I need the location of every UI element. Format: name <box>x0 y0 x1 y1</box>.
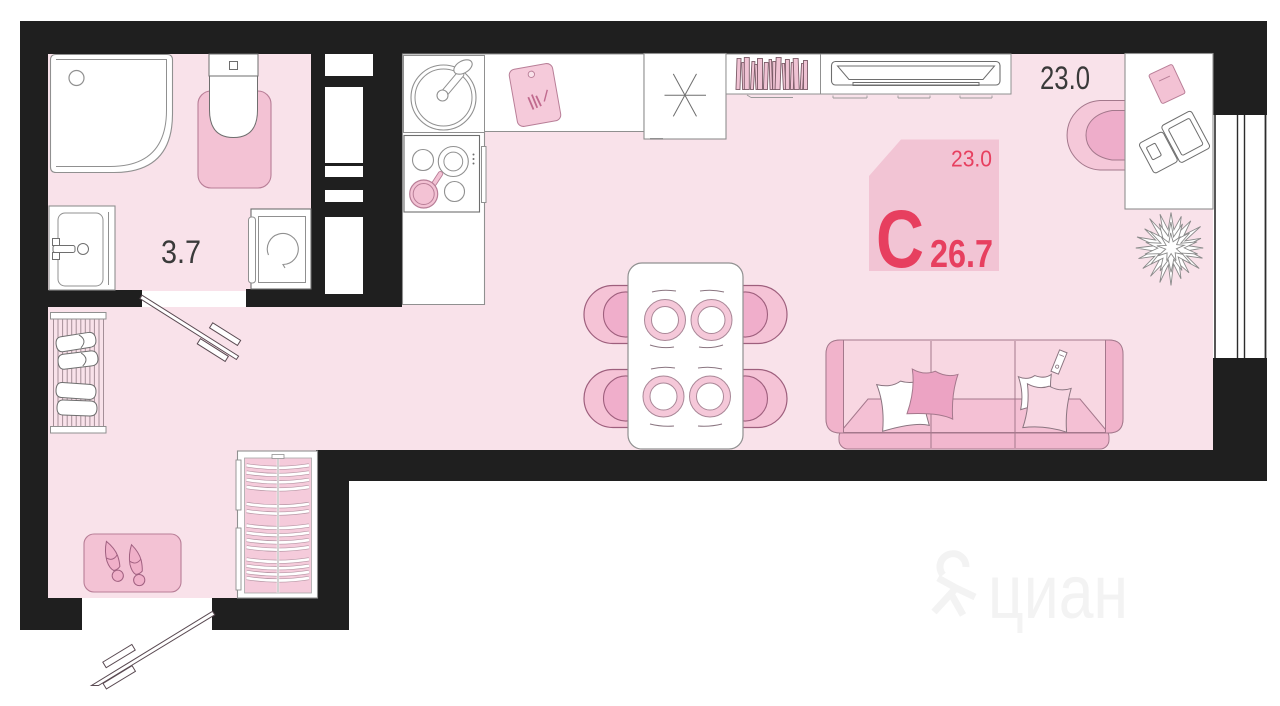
svg-text:23.0: 23.0 <box>951 146 992 172</box>
svg-text:C: C <box>876 194 924 285</box>
svg-text:26.7: 26.7 <box>930 233 993 276</box>
svg-text:3.7: 3.7 <box>161 234 201 270</box>
svg-text:23.0: 23.0 <box>1040 60 1090 96</box>
svg-text:циан: циан <box>988 550 1128 635</box>
